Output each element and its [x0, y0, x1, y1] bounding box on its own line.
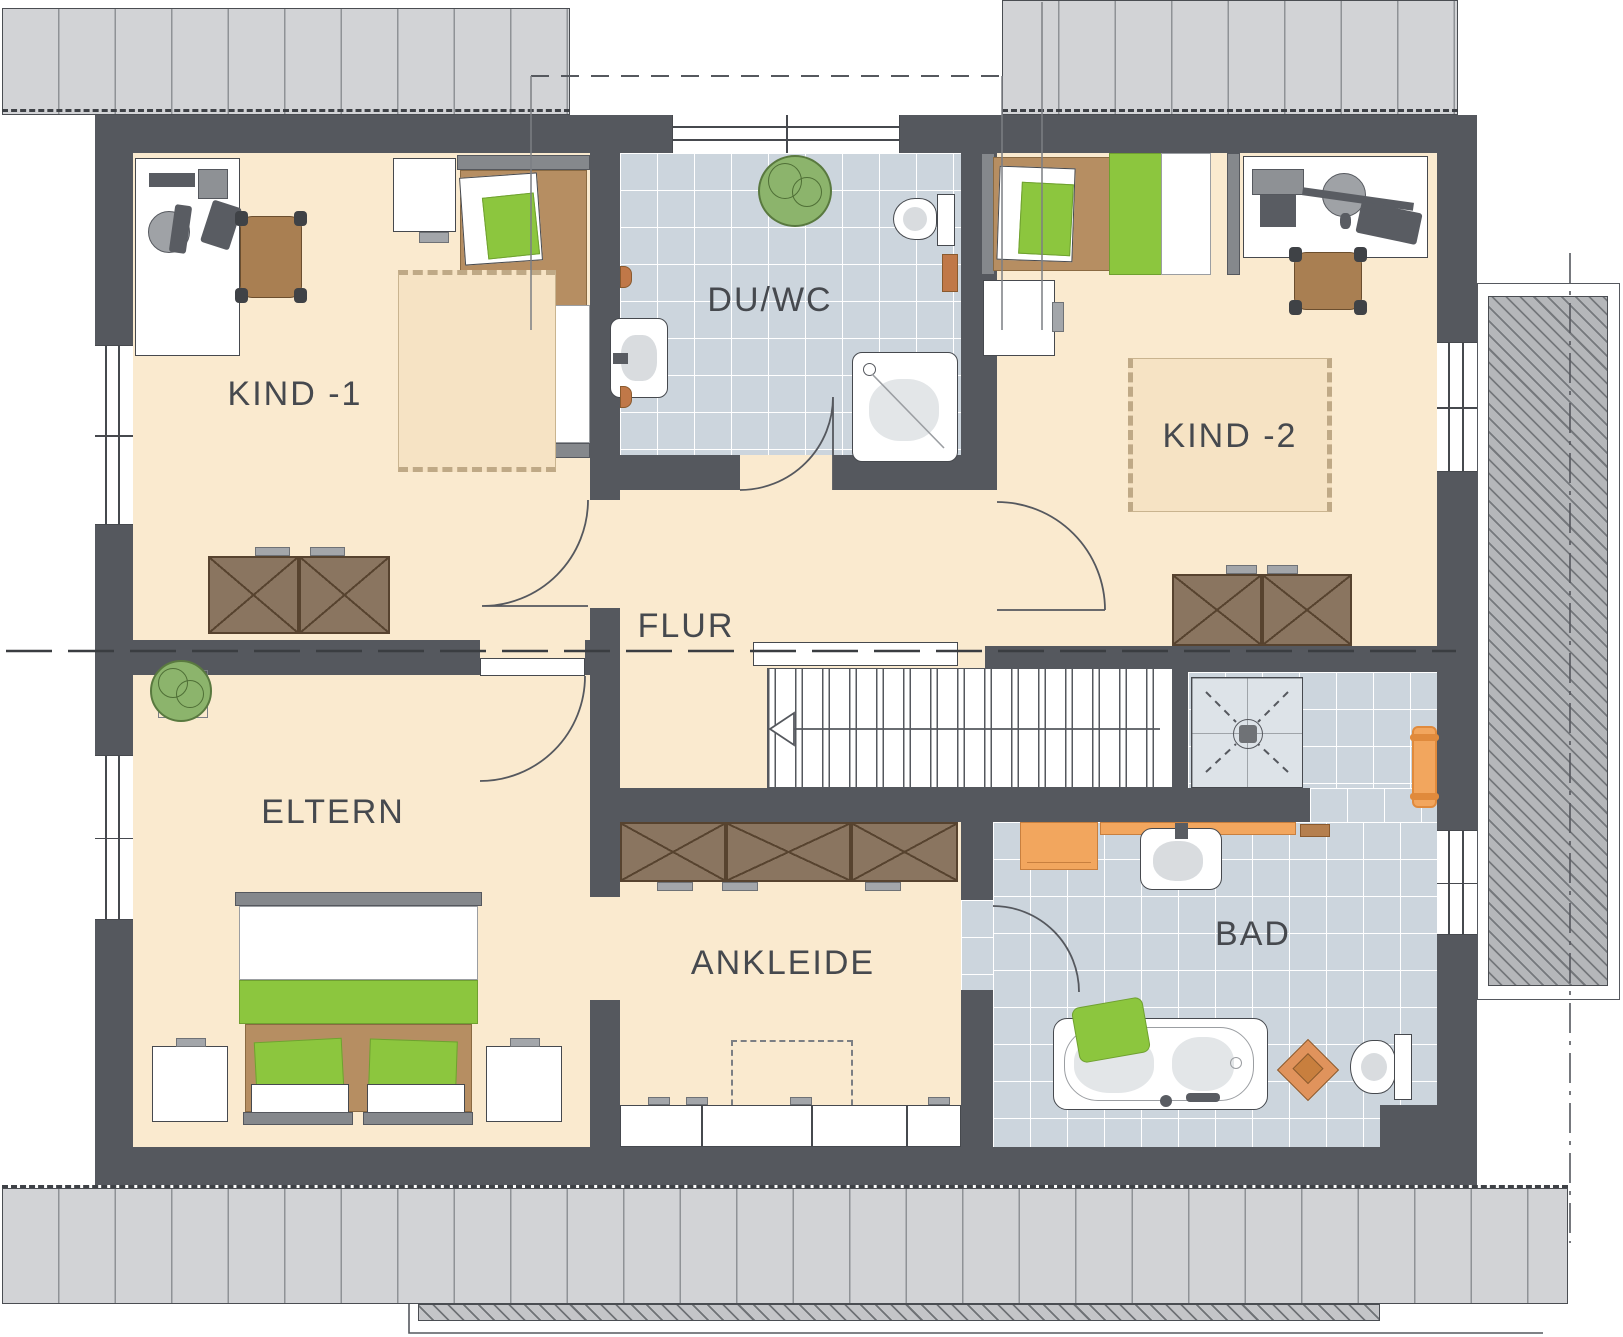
dresser-handle: [1226, 565, 1257, 574]
eltern-door-leaf: [480, 658, 585, 676]
window-left-eltern: [95, 755, 133, 920]
eltern-plant: [150, 660, 216, 726]
dresser-panel: [208, 556, 299, 634]
chair-leg: [1354, 247, 1367, 262]
kind1-cabinet-handle: [419, 232, 449, 243]
wardrobe-handle: [657, 882, 693, 891]
ankleide-builtin-closet: [620, 1105, 961, 1147]
wardrobe-panel: [851, 822, 958, 882]
window-mullion: [1437, 883, 1477, 885]
room-label-eltern: ELTERN: [261, 795, 405, 829]
basin-tap-icon: [1175, 823, 1188, 839]
kind2-nightstand-handle: [1052, 302, 1064, 332]
bed-cushion: [1018, 182, 1074, 257]
roof-band-top-right: [1002, 0, 1458, 115]
bed-headboard: [363, 1112, 473, 1125]
kind1-dresser: [208, 556, 390, 634]
kind1-cabinet: [393, 158, 456, 232]
doorway-ankleide: [588, 897, 620, 1000]
toilet-nook-wall: [1380, 1105, 1437, 1147]
kind2-dresser: [1172, 574, 1352, 646]
duwc-towel-hook: [620, 266, 632, 288]
window-mullion: [95, 435, 133, 437]
bed-blanket: [1109, 153, 1165, 275]
doorway-kind2: [961, 490, 997, 646]
closet-divider: [906, 1106, 908, 1146]
closet-handle: [928, 1097, 950, 1105]
stairs-landing: [753, 642, 958, 666]
chair-leg: [294, 288, 307, 303]
bad-washbasin: [1140, 828, 1222, 890]
closet-divider: [701, 1106, 703, 1146]
basin-tap-icon: [613, 353, 628, 364]
eltern-nightstand-handle: [176, 1038, 206, 1047]
kind1-rug: [398, 270, 556, 472]
room-label-flur: FLUR: [638, 609, 735, 643]
duwc-toilet: [893, 194, 957, 246]
closet-handle: [790, 1097, 812, 1105]
window-right-kind2: [1437, 342, 1477, 472]
shower-drain-ring: [1233, 719, 1263, 749]
chair-leg: [294, 211, 307, 226]
bed-headboard: [457, 155, 590, 170]
room-label-bad: BAD: [1215, 917, 1291, 951]
bed-footboard: [1227, 153, 1240, 275]
bed-cushion: [482, 192, 540, 259]
desk-pc-icon: [198, 169, 228, 199]
closet-handle: [686, 1097, 708, 1105]
chair-leg: [235, 288, 248, 303]
desk-pc-icon: [1260, 195, 1296, 227]
floor-plan: KIND -1 DU/WC: [0, 0, 1623, 1337]
staircase: [767, 668, 1173, 788]
roof-hatch-strip-bottom: [418, 1304, 1380, 1321]
bathtub-faucet-icon: [1186, 1093, 1220, 1102]
bad-toilet: [1350, 1034, 1412, 1100]
shower-head-icon: [863, 363, 876, 376]
cabinet-line: [1027, 862, 1091, 864]
eltern-nightstand-right: [486, 1046, 562, 1122]
desk-mouse-icon: [1340, 213, 1351, 229]
chair-leg: [235, 211, 248, 226]
wardrobe-panel: [620, 822, 726, 882]
window-left-kind1: [95, 345, 133, 525]
wardrobe-handle: [722, 882, 758, 891]
roof-edge-dash-top-left: [2, 109, 570, 112]
room-label-kind1: KIND -1: [228, 377, 363, 411]
window-mullion: [1437, 407, 1477, 409]
dresser-handle: [255, 547, 290, 556]
duwc-towel-hook: [620, 386, 632, 408]
bad-walkin-shower: [1191, 677, 1303, 788]
bed-duvet-white: [239, 906, 478, 980]
kind2-desk: [1243, 156, 1428, 258]
eltern-nightstand-left: [152, 1046, 228, 1122]
kind2-nightstand: [983, 280, 1055, 356]
roof-edge-dash-top-right: [1002, 109, 1458, 112]
dresser-handle: [310, 547, 345, 556]
desk-monitor-icon: [149, 173, 195, 187]
wardrobe-handle: [865, 882, 901, 891]
eltern-double-bed: [235, 892, 482, 1125]
doorway-kind1: [588, 500, 620, 608]
bathtub-water: [1172, 1037, 1234, 1091]
dresser-panel: [1172, 574, 1262, 646]
chair-leg: [1354, 300, 1367, 315]
bathtub-drain: [1230, 1057, 1242, 1069]
bed-blanket: [239, 980, 478, 1024]
doorway-bad: [961, 900, 993, 990]
room-label-duwc: DU/WC: [707, 283, 832, 317]
dresser-panel: [1262, 574, 1352, 646]
duwc-shelf: [942, 254, 958, 292]
roof-band-bottom: [2, 1188, 1568, 1304]
room-label-kind2: KIND -2: [1163, 419, 1298, 453]
chair-leg: [1289, 300, 1302, 315]
kind1-office-chair: [240, 216, 302, 298]
wardrobe-panel: [726, 822, 851, 882]
toilet-tank: [937, 194, 955, 246]
kind2-bed: [981, 153, 1240, 275]
plant-leaf: [176, 680, 204, 708]
dresser-handle: [1267, 565, 1298, 574]
room-label-ankleide: ANKLEIDE: [691, 946, 875, 980]
desk-printer-icon: [1252, 169, 1304, 195]
shower-water: [869, 379, 939, 441]
toilet-bowl-inner: [903, 207, 927, 231]
bed-footboard: [235, 892, 482, 906]
stool-inner: [1292, 1053, 1323, 1084]
toilet-tank: [1394, 1034, 1412, 1100]
eltern-nightstand-handle: [510, 1038, 540, 1047]
radiator-bar: [1410, 734, 1439, 741]
bad-cabinet: [1020, 822, 1098, 870]
duwc-plant: [758, 155, 832, 227]
duwc-washbasin: [610, 318, 668, 398]
duwc-shower-tray: [852, 352, 958, 462]
closet-divider: [811, 1106, 813, 1146]
roof-band-top-left: [2, 8, 570, 115]
ankleide-wardrobe: [620, 822, 958, 882]
plant-leaf: [792, 177, 822, 207]
bad-towel-radiator: [1412, 726, 1437, 808]
closet-handle: [648, 1097, 670, 1105]
basin-inner: [1153, 841, 1203, 881]
chair-leg: [1289, 247, 1302, 262]
kind1-desk: [135, 158, 240, 356]
room-floor-flur-lower: [620, 640, 767, 788]
window-mullion: [95, 838, 133, 840]
kind2-office-chair: [1294, 252, 1362, 310]
bed-sheet: [1161, 153, 1211, 275]
window-top-duwc: [672, 115, 900, 153]
roof-edge-dash-bottom: [2, 1185, 1568, 1188]
window-right-bad: [1437, 830, 1477, 935]
doorway-duwc: [740, 455, 833, 490]
radiator-bar: [1410, 793, 1439, 800]
window-mullion: [786, 115, 788, 153]
toilet-bowl-inner: [1361, 1053, 1387, 1081]
bad-wood-item: [1300, 824, 1330, 837]
side-roof-hatch: [1488, 296, 1608, 986]
stair-divider-wall: [1173, 668, 1188, 788]
dresser-panel: [299, 556, 390, 634]
bathtub-knob-icon: [1160, 1095, 1172, 1107]
bed-headboard: [243, 1112, 353, 1125]
